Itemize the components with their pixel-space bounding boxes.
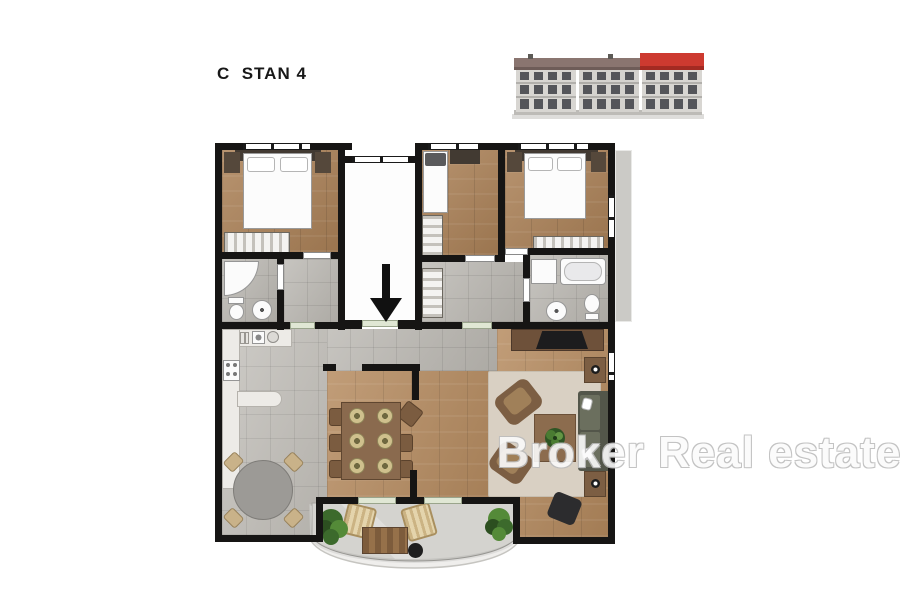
wall — [316, 497, 520, 504]
wall — [523, 302, 530, 329]
wall — [215, 535, 323, 542]
place-setting — [349, 433, 365, 449]
wall — [498, 143, 505, 262]
lamp — [591, 365, 600, 374]
hall-closet — [422, 268, 443, 318]
wall — [323, 364, 336, 371]
wall — [215, 143, 222, 542]
place-setting — [377, 433, 393, 449]
building-elevation — [508, 52, 708, 124]
window — [518, 143, 588, 150]
highlighted-roof — [640, 53, 704, 68]
window — [428, 143, 478, 150]
place-setting — [377, 408, 393, 424]
dining-chair — [399, 434, 413, 452]
neighbor-terrace-strip — [615, 150, 632, 322]
bathtub-inner — [564, 262, 602, 281]
nightstand — [224, 152, 240, 173]
window — [608, 350, 615, 380]
pillow — [280, 157, 308, 172]
wall — [492, 322, 615, 329]
wall — [418, 255, 465, 262]
burner — [226, 372, 230, 376]
wall — [338, 143, 345, 330]
toilet-tank — [228, 297, 244, 304]
terrace-door-sill — [424, 497, 462, 504]
nightstand — [315, 152, 331, 173]
wall — [528, 248, 615, 255]
balcony-door — [608, 195, 615, 237]
wardrobe — [224, 232, 290, 254]
tv — [536, 331, 588, 349]
wall — [215, 322, 290, 329]
hall-door-sill — [462, 322, 492, 329]
shelf — [450, 150, 480, 164]
wall — [415, 143, 422, 330]
wardrobe — [422, 215, 443, 258]
toilet — [229, 304, 244, 320]
wall — [513, 537, 615, 544]
wall — [523, 255, 530, 278]
lamp — [591, 479, 600, 488]
place-setting — [377, 458, 393, 474]
wall — [412, 364, 419, 400]
kitchen-door-sill — [290, 322, 315, 329]
burner — [233, 363, 237, 367]
wall — [315, 322, 362, 329]
door — [277, 264, 284, 290]
door — [465, 255, 495, 262]
toilet — [584, 294, 600, 313]
burner — [226, 363, 230, 367]
sink — [252, 300, 272, 320]
burner — [233, 372, 237, 376]
sink — [546, 301, 567, 321]
pillow — [425, 153, 446, 166]
entrance-arrow-icon — [366, 262, 406, 326]
door — [505, 248, 528, 255]
window — [243, 143, 310, 150]
kitchen-sink — [252, 331, 265, 344]
toilet-tank — [585, 313, 599, 320]
round-table — [233, 460, 293, 520]
wall — [410, 470, 417, 497]
corridor-floor — [284, 259, 338, 329]
wall — [398, 322, 462, 329]
pillow — [247, 157, 275, 172]
pillow — [528, 157, 553, 171]
kitchen-peninsula — [237, 391, 282, 407]
nightstand — [591, 152, 606, 172]
pillow — [557, 157, 582, 171]
plant — [483, 505, 515, 543]
place-setting — [349, 458, 365, 474]
place-setting — [349, 408, 365, 424]
nightstand — [507, 152, 522, 172]
terrace-door-sill — [358, 497, 396, 504]
page-title: C STAN 4 — [217, 64, 307, 84]
terrace-table — [362, 527, 408, 554]
bathroom-cabinet — [531, 259, 557, 284]
door — [303, 252, 331, 259]
planter-pot — [408, 543, 423, 558]
wall — [498, 248, 505, 255]
floor-plan-page: C STAN 4 — [0, 0, 900, 600]
sink-bowl — [267, 331, 279, 343]
door — [523, 278, 530, 302]
watermark: Broker Real estate — [497, 428, 900, 478]
window — [352, 156, 408, 163]
